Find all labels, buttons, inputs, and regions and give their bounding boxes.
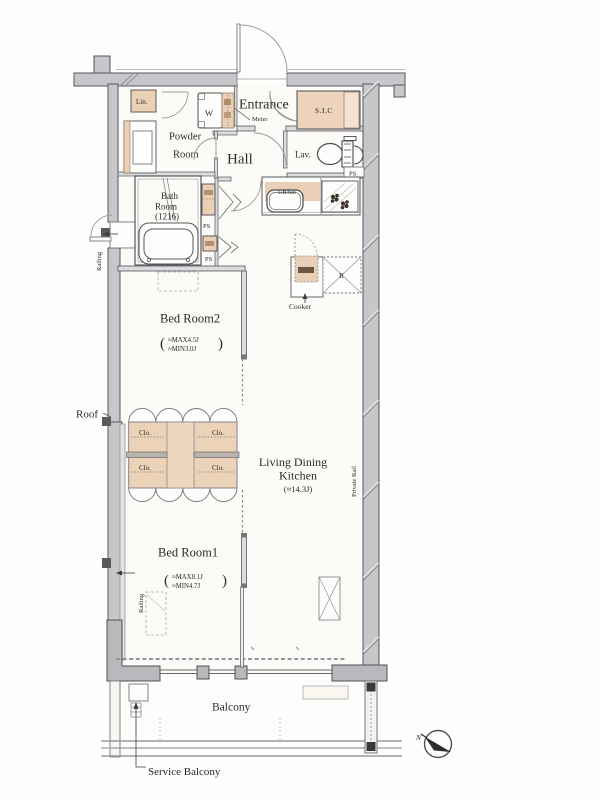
svg-text:Room: Room [155,202,177,212]
svg-text:Roof: Roof [76,409,98,421]
svg-text:S.I.C: S.I.C [315,106,333,115]
svg-text:PS: PS [349,171,357,178]
svg-text:UB/Sto: UB/Sto [278,190,296,196]
svg-text:≈MIN4.7J: ≈MIN4.7J [172,583,200,590]
svg-text:): ) [218,336,223,352]
svg-text:Service Balcony: Service Balcony [148,766,221,778]
svg-text:Private Rail: Private Rail [351,466,358,497]
svg-text:Bed Room1: Bed Room1 [158,546,218,560]
svg-text:Bath: Bath [161,191,178,201]
svg-text:PS: PS [203,223,211,230]
svg-text:(: ( [160,336,165,352]
svg-text:Bed Room2: Bed Room2 [160,312,220,326]
svg-text:≈MAX8.1J: ≈MAX8.1J [172,574,203,581]
svg-text:R: R [339,271,344,280]
svg-text:Balcony: Balcony [212,702,251,714]
svg-text:≈MIN3.0J: ≈MIN3.0J [168,346,196,353]
svg-text:Railing: Railing [96,251,103,271]
svg-text:≈MAX4.5J: ≈MAX4.5J [168,337,199,344]
svg-text:Clo.: Clo. [212,464,224,472]
svg-text:(1216): (1216) [155,212,179,222]
svg-text:Living Dining: Living Dining [259,455,327,469]
svg-text:): ) [222,573,227,589]
svg-text:Powder: Powder [169,132,202,143]
svg-text:Cooker: Cooker [289,302,312,311]
svg-text:W: W [205,108,213,118]
svg-text:Clo.: Clo. [139,429,151,437]
svg-text:Lav.: Lav. [295,150,311,160]
svg-text:(≈14.3J): (≈14.3J) [284,484,313,494]
svg-text:Meter: Meter [252,116,268,123]
svg-text:Railing: Railing [138,593,145,613]
svg-text:Hall: Hall [227,152,253,168]
svg-text:PS: PS [205,256,213,263]
svg-text:Kitchen: Kitchen [279,469,317,483]
svg-text:Entrance: Entrance [239,98,289,113]
svg-text:Clo.: Clo. [139,464,151,472]
svg-text:Lin.: Lin. [136,98,148,106]
svg-text:Clo.: Clo. [212,429,224,437]
svg-text:(: ( [164,573,169,589]
